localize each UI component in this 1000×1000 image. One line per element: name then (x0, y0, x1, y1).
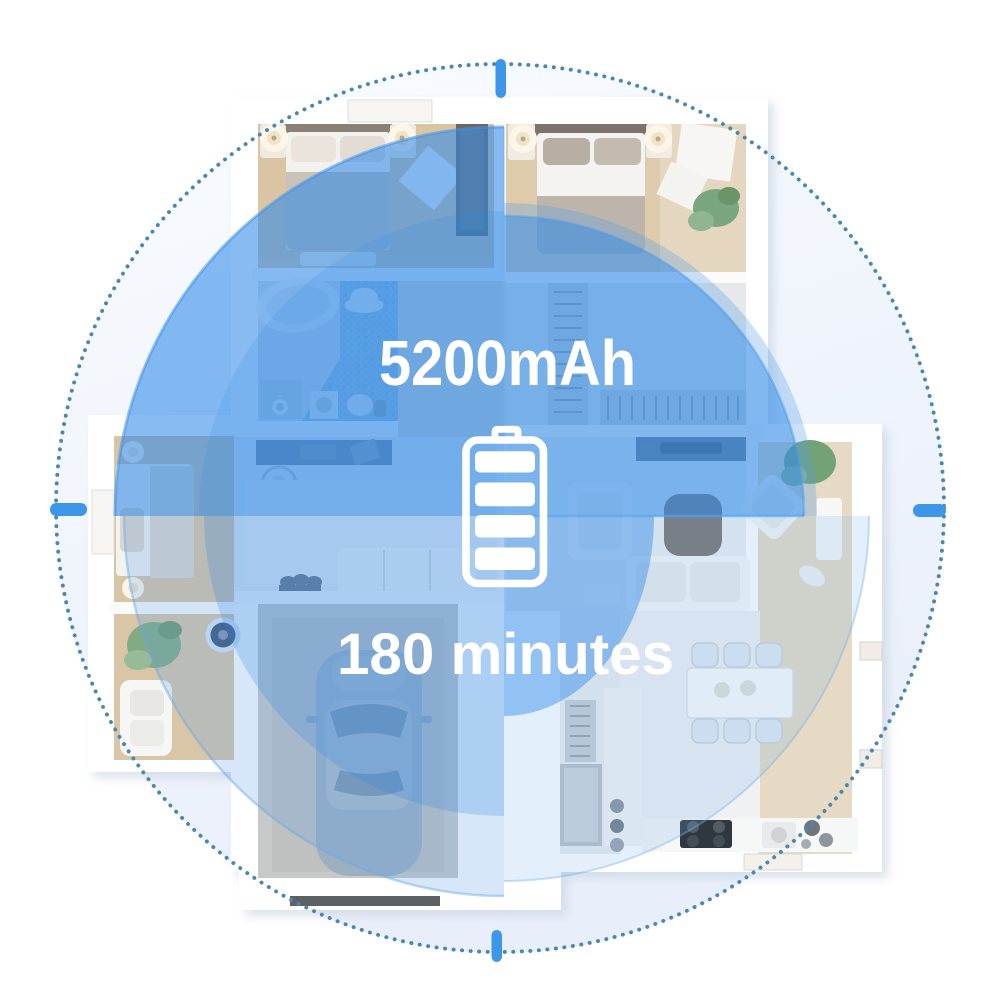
svg-text:180 minutes: 180 minutes (337, 622, 674, 687)
svg-text:5200mAh: 5200mAh (379, 327, 636, 399)
